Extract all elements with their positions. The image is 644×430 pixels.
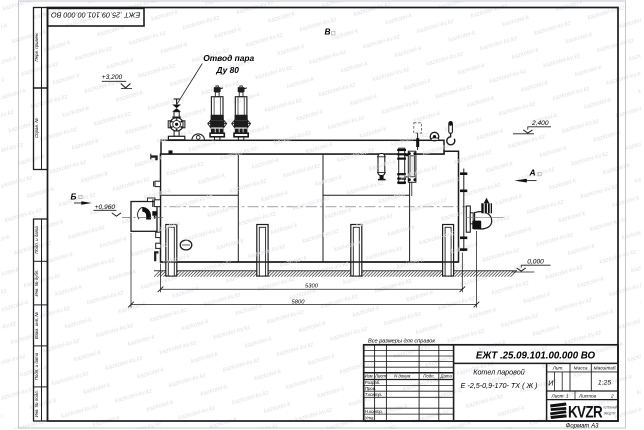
- svg-text:И: И: [548, 379, 554, 388]
- svg-text:ЕЖТ .25.09.101.00.000 ВО: ЕЖТ .25.09.101.00.000 ВО: [476, 351, 596, 362]
- svg-text:Листов: Листов: [578, 394, 597, 399]
- svg-text:Подп.: Подп.: [423, 374, 434, 379]
- svg-text:А: А: [529, 168, 536, 178]
- svg-text:Утв.: Утв.: [365, 415, 375, 420]
- svg-text:Перв. примен.: Перв. примен.: [34, 32, 39, 61]
- svg-text:5800: 5800: [292, 300, 306, 306]
- svg-text:Ду 80: Ду 80: [215, 65, 239, 75]
- svg-text:Подп. и дата: Подп. и дата: [34, 226, 39, 254]
- svg-text:Инв. № подл.: Инв. № подл.: [34, 390, 39, 417]
- svg-text:Масса: Масса: [574, 366, 588, 371]
- svg-text:Е -2,5-0,9-170- ТХ ( Ж ): Е -2,5-0,9-170- ТХ ( Ж ): [461, 381, 538, 390]
- svg-text:Инв. № дубл.: Инв. № дубл.: [34, 269, 39, 296]
- svg-text:Масштаб: Масштаб: [594, 366, 616, 371]
- svg-text:Пров.: Пров.: [365, 386, 376, 391]
- svg-text:Подп. и дата: Подп. и дата: [34, 352, 39, 380]
- svg-text:КОТЕЛЬНЫЙ: КОТЕЛЬНЫЙ: [604, 406, 618, 410]
- svg-text:1: 1: [566, 394, 569, 399]
- svg-text:2,400: 2,400: [531, 120, 549, 127]
- svg-text:Отвод пара: Отвод пара: [203, 53, 254, 63]
- svg-text:Дата: Дата: [440, 374, 453, 379]
- svg-text:Лист: Лист: [374, 374, 386, 379]
- svg-text:0,000: 0,000: [527, 258, 544, 265]
- svg-text:Формат А3: Формат А3: [566, 424, 599, 430]
- svg-text:Взам. инв. №: Взам. инв. №: [34, 312, 39, 339]
- svg-text:+0,960: +0,960: [95, 204, 116, 211]
- svg-text:5300: 5300: [305, 284, 319, 290]
- svg-text:Лит.: Лит.: [552, 366, 564, 371]
- svg-text:+3,200: +3,200: [102, 74, 123, 81]
- svg-text:KVZR: KVZR: [568, 403, 603, 422]
- svg-text:Все размеры для справок: Все размеры для справок: [368, 339, 435, 345]
- svg-text:Н.контр.: Н.контр.: [365, 409, 383, 414]
- svg-text:ЗАВОД РЗР: ЗАВОД РЗР: [604, 412, 616, 416]
- svg-text:Котел паровой: Котел паровой: [473, 368, 525, 377]
- svg-text:В: В: [325, 27, 331, 37]
- svg-text:1:25: 1:25: [598, 380, 611, 387]
- svg-text:2: 2: [610, 394, 614, 399]
- svg-text:Б: Б: [71, 192, 77, 202]
- svg-text:N докум.: N докум.: [394, 374, 411, 379]
- svg-text:Изм.: Изм.: [365, 374, 374, 379]
- svg-text:ЕЖТ .25.09.101.00.000 ВО: ЕЖТ .25.09.101.00.000 ВО: [51, 10, 141, 19]
- svg-text:Разраб.: Разраб.: [365, 380, 381, 385]
- svg-text:Справ. №: Справ. №: [34, 118, 39, 138]
- svg-text:Т.контр.: Т.контр.: [365, 392, 382, 397]
- svg-text:Лист: Лист: [551, 394, 564, 399]
